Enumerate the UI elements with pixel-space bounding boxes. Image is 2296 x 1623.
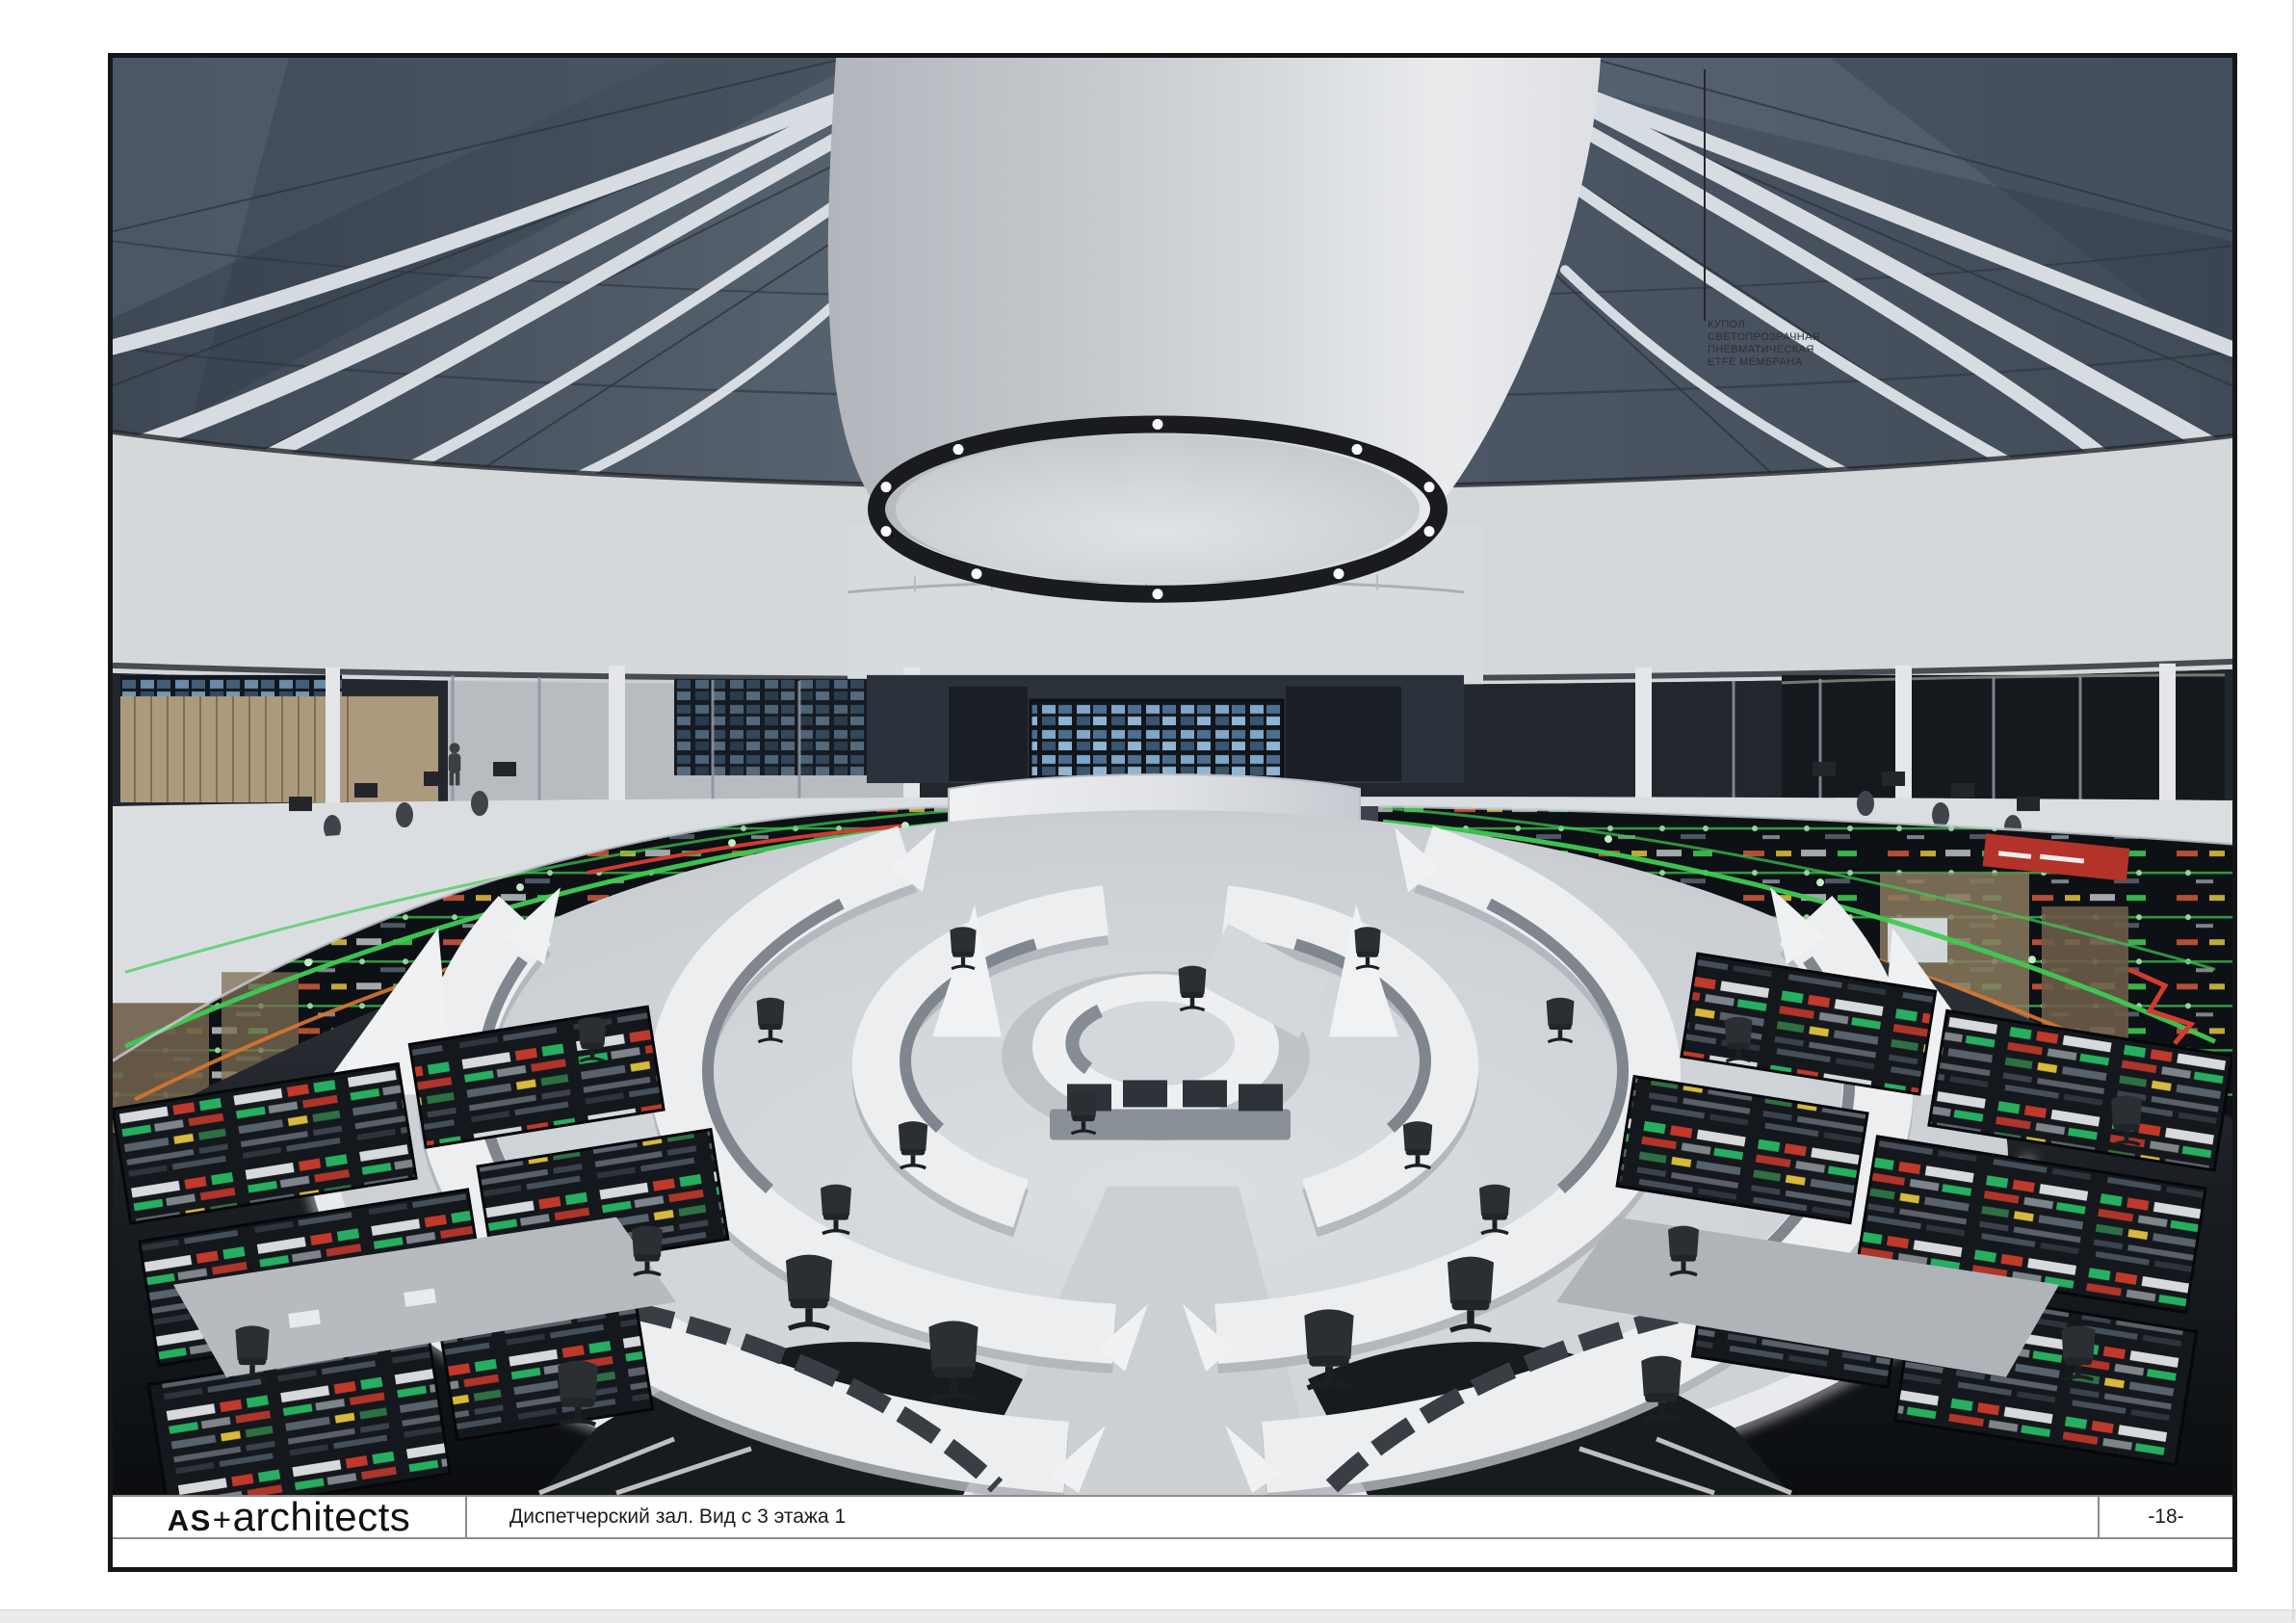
title-block-empty-row [113, 1539, 2232, 1567]
logo-bold: AS [168, 1504, 212, 1538]
annotation-dome-label: КУПОЛ СВЕТОПРОЗРАЧНАЯ ПНЕВМАТИЧЕСКАЯ ETF… [1708, 319, 1820, 369]
logo-plus: + [213, 1502, 232, 1538]
annotation-line: СВЕТОПРОЗРАЧНАЯ [1708, 331, 1820, 344]
logo-rest: architects [233, 1494, 411, 1540]
far-videowall-band [867, 675, 1464, 783]
annotation-line: КУПОЛ [1708, 319, 1820, 331]
drawing-sheet: КУПОЛ СВЕТОПРОЗРАЧНАЯ ПНЕВМАТИЧЕСКАЯ ETF… [108, 53, 2237, 1572]
sheet-caption: Диспетчерский зал. Вид с 3 этажа 1 [467, 1497, 2098, 1537]
page-number: -18- [2098, 1497, 2232, 1537]
firm-logo: AS+architects [113, 1497, 467, 1537]
page-edge-bottom [0, 1610, 2296, 1623]
annotation-line: ETFE МЕМБРАНА [1708, 356, 1820, 369]
title-block: AS+architects Диспетчерский зал. Вид с 3… [113, 1495, 2232, 1539]
control-hall-rendering [113, 58, 2232, 1495]
page-edge-right [2292, 0, 2294, 1622]
annotation-line: ПНЕВМАТИЧЕСКАЯ [1708, 344, 1820, 356]
render-viewport: КУПОЛ СВЕТОПРОЗРАЧНАЯ ПНЕВМАТИЧЕСКАЯ ETF… [113, 58, 2232, 1495]
